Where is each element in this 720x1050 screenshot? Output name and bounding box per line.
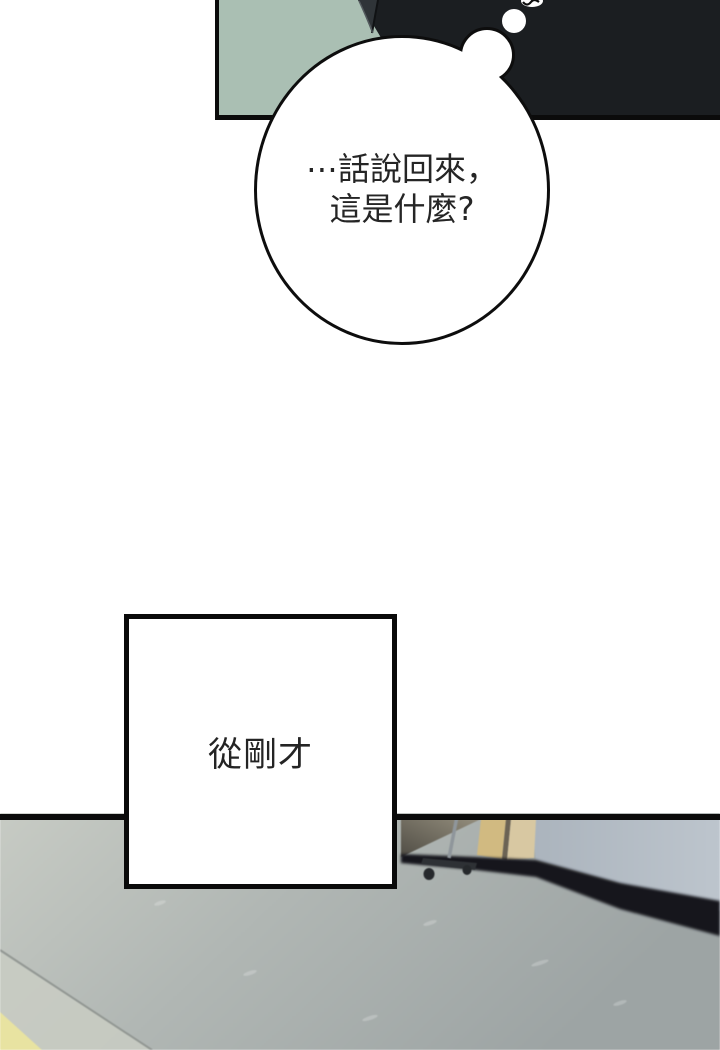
- door-panel: [507, 819, 536, 860]
- speech-line-1: ⋯話說回來，: [306, 150, 498, 190]
- cart-wheel-left: [424, 868, 435, 880]
- cart-wheel-right: [463, 865, 472, 875]
- speech-bubble-text: ⋯話說回來， 這是什麼?: [257, 38, 547, 342]
- speech-line-2: 這是什麼?: [330, 190, 475, 230]
- speech-bubble: ⋯話說回來， 這是什麼?: [230, 8, 556, 350]
- panel-top-left-border: [215, 0, 219, 120]
- caption-box: 從剛才: [124, 614, 397, 889]
- caption-text: 從剛才: [208, 727, 313, 776]
- door-frame: [477, 819, 506, 859]
